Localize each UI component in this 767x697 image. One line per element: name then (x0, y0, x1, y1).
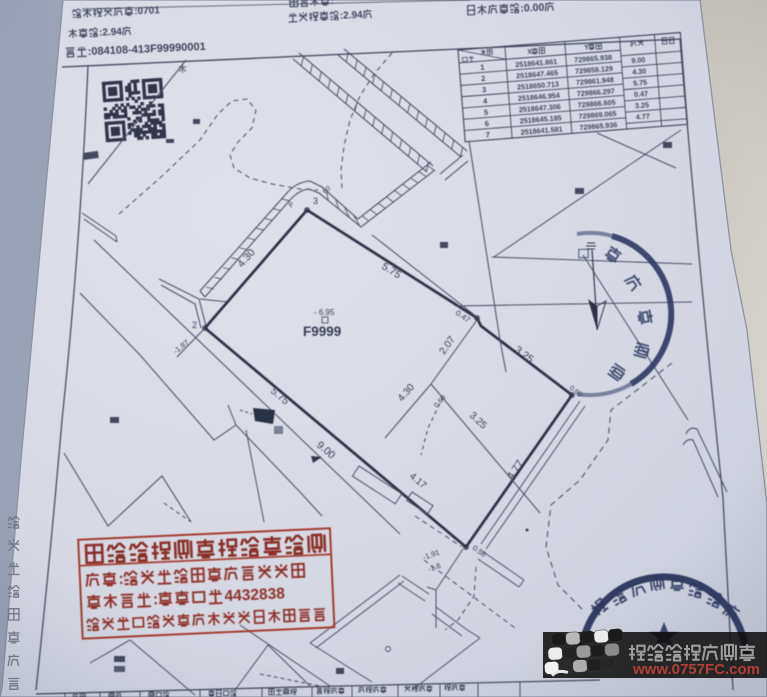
svg-text:www.0757FC.com: www.0757FC.com (632, 661, 760, 678)
